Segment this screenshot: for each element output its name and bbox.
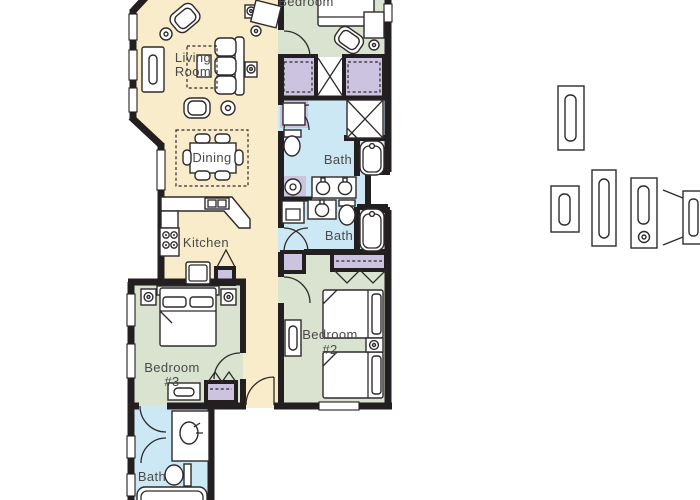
window-bedroom3-1 — [127, 294, 135, 326]
console-table-3 — [592, 170, 616, 246]
floor-plan: Bedroom Living Room Dining Kitchen Bath … — [0, 0, 700, 500]
dining-chair — [195, 171, 210, 180]
tv-console — [142, 47, 164, 92]
dining-label: Dining — [192, 150, 231, 165]
living-room-label-line2: Room — [175, 64, 211, 79]
bed — [157, 286, 219, 346]
dining-chair — [235, 150, 243, 165]
double-sink-vanity — [312, 177, 356, 198]
window-bath-bottom-1 — [127, 436, 135, 458]
nightstand-lamp — [366, 338, 383, 352]
kitchen-sink — [205, 198, 229, 209]
kitchen-label: Kitchen — [183, 235, 229, 250]
nightstand-lamp — [221, 289, 236, 305]
detached-furniture — [551, 86, 700, 248]
bedroom2-label-line1: Bedroom — [302, 327, 358, 342]
chair-partial — [663, 190, 700, 245]
sofa — [215, 37, 244, 95]
window-bath-bottom-2 — [127, 474, 135, 496]
toilet — [284, 130, 301, 156]
sink-vanity — [172, 411, 209, 461]
floor-plan-page: Bedroom Living Room Dining Kitchen Bath … — [0, 0, 700, 500]
round-table — [221, 101, 235, 115]
console-table-2 — [551, 186, 579, 232]
window-living-3 — [129, 88, 137, 112]
bath-middle-label: Bath — [325, 228, 353, 243]
dining-chair — [215, 171, 230, 180]
window-bedroom2 — [319, 402, 359, 410]
living-room-label-line1: Living — [175, 50, 211, 65]
stove — [160, 228, 179, 256]
pedestal-sink — [285, 179, 301, 195]
bath-top-label: Bath — [324, 152, 352, 167]
dresser — [285, 320, 301, 356]
toilet — [165, 464, 191, 486]
hall-linen-closet — [282, 252, 304, 272]
kitchen-counter-left — [161, 211, 178, 228]
accent-chair — [184, 98, 210, 118]
console-table-1 — [558, 86, 584, 150]
end-table-lamp-bottom — [245, 62, 257, 77]
bathtub — [360, 141, 384, 175]
sink-vanity — [308, 200, 336, 219]
round-side-table — [160, 28, 172, 40]
dining-chair — [195, 134, 210, 143]
vanity-counter — [283, 103, 305, 125]
bedroom1-label: Bedroom — [278, 0, 334, 9]
bedroom3-label-line1: Bedroom — [144, 360, 200, 375]
cart-table — [631, 178, 657, 248]
window-living-2 — [129, 50, 137, 80]
bathtub — [137, 487, 207, 500]
window-dining — [157, 150, 165, 190]
shower — [347, 100, 383, 138]
washer — [282, 201, 304, 223]
bath-bottom-label: Bath — [138, 469, 166, 484]
window-bedroom1 — [384, 4, 392, 22]
bedroom3-label-line2: #3 — [164, 374, 179, 389]
bedroom2-label-line2: #2 — [322, 342, 337, 357]
window-living-1 — [129, 14, 137, 40]
bathtub — [360, 209, 384, 251]
dining-chair — [183, 150, 191, 165]
toilet — [339, 200, 355, 225]
nightstand-lamp — [141, 289, 156, 305]
bed-twin-2 — [323, 352, 383, 398]
window-bedroom3-2 — [127, 344, 135, 378]
dining-chair — [215, 134, 230, 143]
refrigerator — [186, 262, 210, 284]
